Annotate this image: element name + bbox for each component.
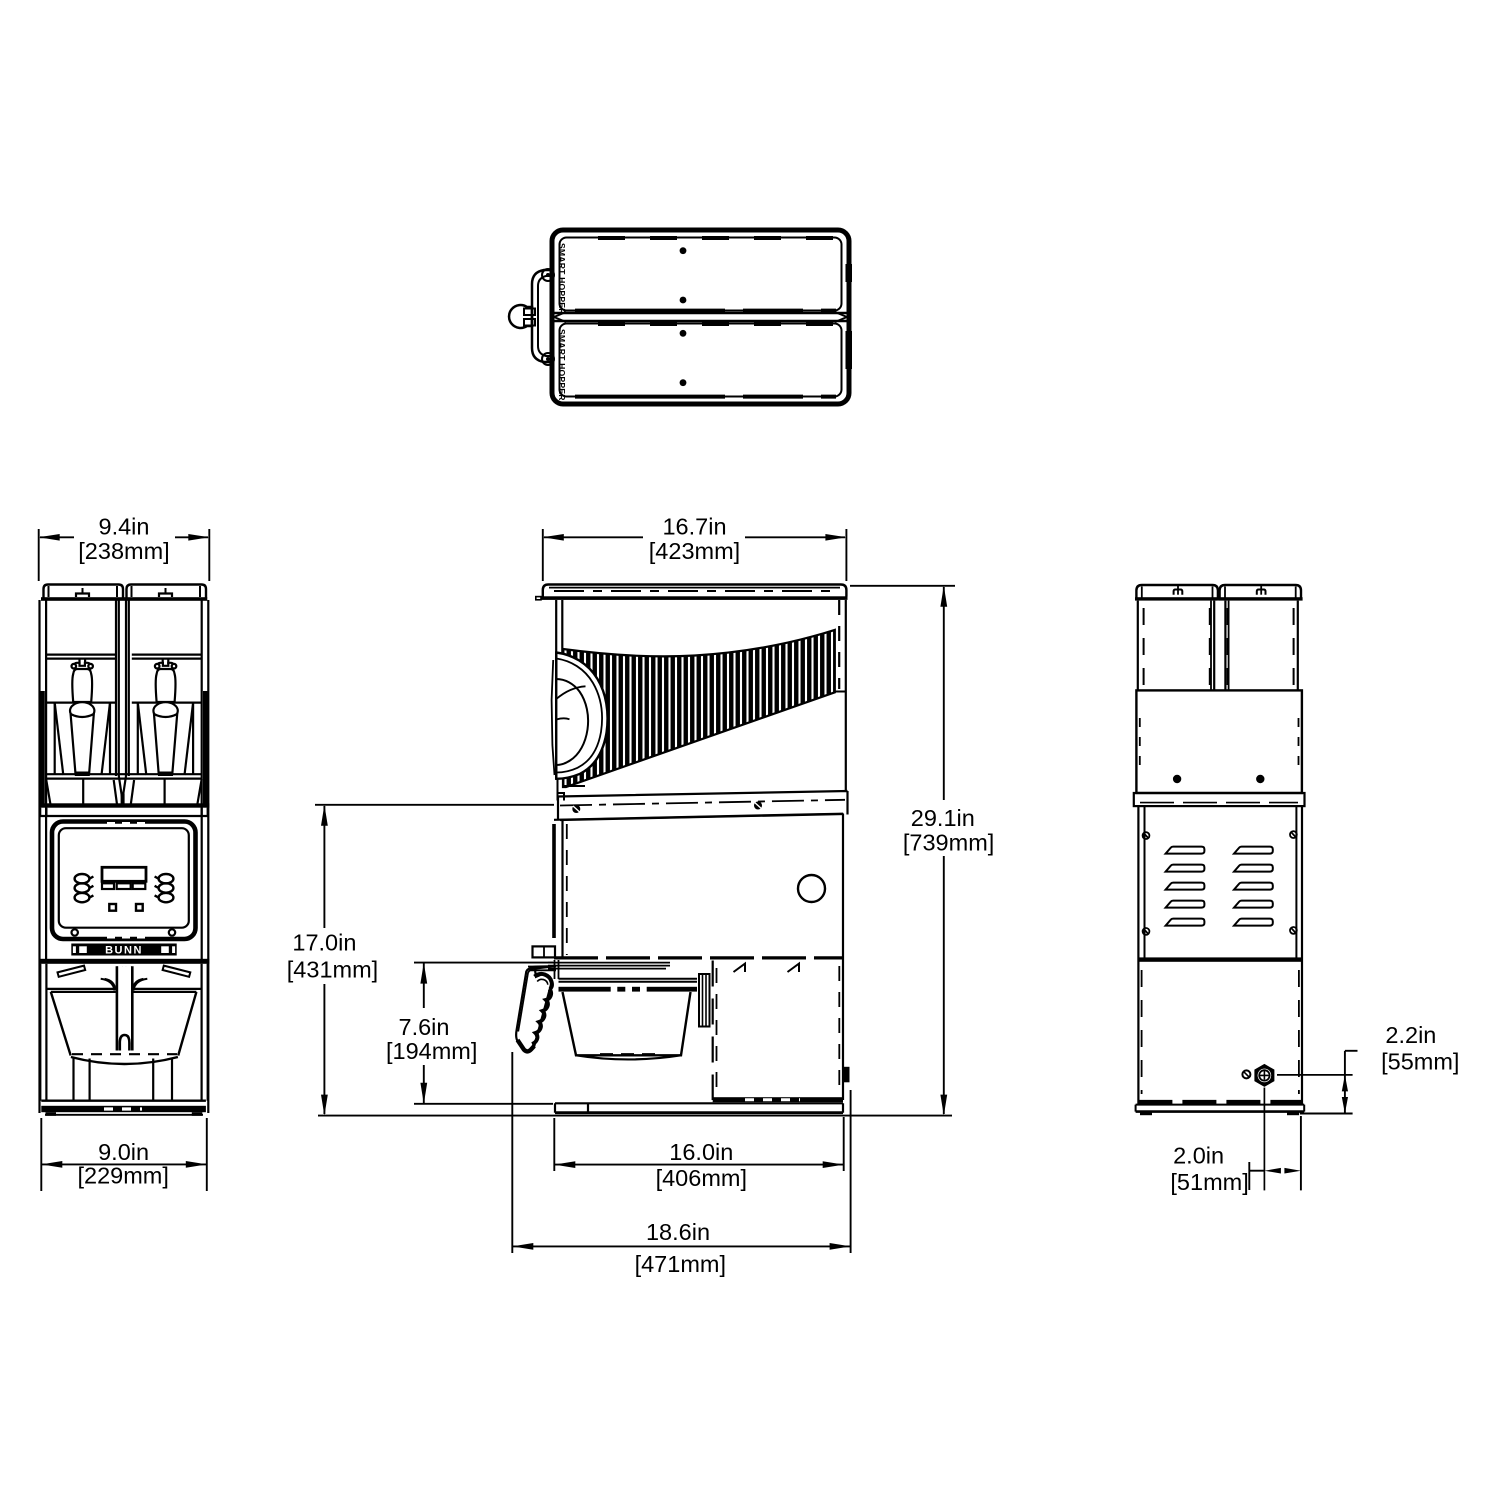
svg-text:7.6in: 7.6in: [399, 1014, 450, 1040]
svg-text:[423mm]: [423mm]: [649, 538, 740, 564]
svg-text:16.0in: 16.0in: [669, 1139, 733, 1165]
svg-text:[51mm]: [51mm]: [1170, 1169, 1248, 1195]
svg-text:18.6in: 18.6in: [646, 1219, 710, 1245]
svg-text:[739mm]: [739mm]: [903, 829, 994, 855]
svg-text:[406mm]: [406mm]: [656, 1165, 747, 1191]
svg-text:2.2in: 2.2in: [1385, 1022, 1436, 1048]
svg-text:16.7in: 16.7in: [662, 514, 726, 540]
svg-text:29.1in: 29.1in: [911, 805, 975, 831]
svg-text:[229mm]: [229mm]: [77, 1163, 168, 1189]
svg-text:[194mm]: [194mm]: [386, 1038, 477, 1064]
svg-text:SMART HOPPER: SMART HOPPER: [557, 243, 567, 315]
svg-text:[55mm]: [55mm]: [1381, 1048, 1459, 1074]
svg-text:9.4in: 9.4in: [99, 514, 150, 540]
svg-text:9.0in: 9.0in: [98, 1139, 149, 1165]
svg-text:[238mm]: [238mm]: [78, 538, 169, 564]
svg-text:BUNN: BUNN: [105, 944, 143, 956]
svg-text:[471mm]: [471mm]: [635, 1251, 726, 1277]
svg-text:2.0in: 2.0in: [1173, 1143, 1224, 1169]
svg-text:[431mm]: [431mm]: [287, 956, 378, 982]
svg-text:17.0in: 17.0in: [292, 930, 356, 956]
svg-text:SMART HOPPER: SMART HOPPER: [557, 329, 567, 401]
